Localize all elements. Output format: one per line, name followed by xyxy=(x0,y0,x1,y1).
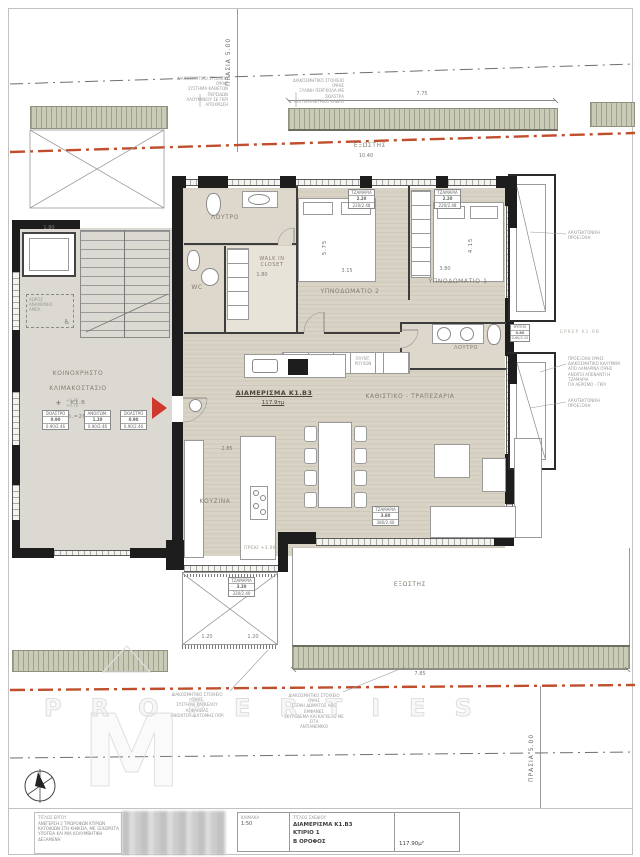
bath2-label: ΛΟΥΤΡΟ xyxy=(444,345,488,351)
pergola-railing-ticks xyxy=(182,645,278,649)
bedroom2-label: ΥΠΝΟΔΩΜΑΤΙΟ 2 xyxy=(308,288,392,296)
partition xyxy=(184,332,304,334)
note-top-1: ΔΙΑΚΟΣΜΗΤΙΚΟ ΣΤΟΙΧΕΙΟ ΟΨΗΣ ΣΥΣΤΗΜΑ ΚΑΘΕΤ… xyxy=(170,76,228,107)
partition xyxy=(400,368,506,370)
wall xyxy=(172,422,183,558)
north-arrow-needle xyxy=(35,772,46,789)
floor-drain xyxy=(189,399,202,412)
partition xyxy=(400,322,402,332)
stairwell-line2: ΚΛΙΜΑΚΟΣΤΑΣΙΟ xyxy=(28,385,128,393)
dim-pergola-b: 1.20 xyxy=(238,634,268,640)
balcony-bottom-floor xyxy=(292,548,630,645)
dim-bed2-w: 3.15 xyxy=(332,268,362,274)
burner xyxy=(260,495,266,501)
dim-bed1-w: 3.80 xyxy=(430,266,460,272)
balcony-top-length: 10.40 xyxy=(336,153,396,159)
window-tag-tzamaria-bed2: ΤΖΑΜΑΡΙΑ 2.20 220/2.48 xyxy=(348,189,375,209)
dining-chair xyxy=(304,426,317,442)
note-bottom-2: ΔΙΑΚΟΣΜΗΤΙΚΟ ΣΤΟΙΧΕΙΟ ΟΨΗΣ ΣΤΕΨΗ ΔΩΜΑΤΟΣ… xyxy=(282,693,346,729)
dining-chair xyxy=(354,492,367,508)
tag-spec: 220/2.48 xyxy=(435,202,460,208)
dim-kitchen: 2.85 xyxy=(212,446,242,452)
tag-spec: 320/2.40 xyxy=(229,590,254,596)
dining-chair xyxy=(304,492,317,508)
scale-cell: ΚΛΙΜΑΚΑ 1:50 xyxy=(238,813,290,851)
project-title-text: ΑΝΕΓΕΡΣΗ 2 ΤΡΙΩΡΟΦΩΝ ΚΤΙΡΙΩΝ ΚΑΤΟΙΚΙΩΝ Σ… xyxy=(38,821,121,842)
dining-table xyxy=(318,422,352,508)
balcony-band-bottom-right xyxy=(292,645,630,669)
bath1-label: ΛΟΥΤΡΟ xyxy=(200,214,250,222)
dim-bottom-width: 7.85 xyxy=(400,671,440,677)
amea-label: ΧΩΡΟΣ ΑΝΑΜΟΝΗΣ ΑΜΕΑ xyxy=(29,297,53,313)
stairwell-line1: ΚΟΙΝΟΧΡΗΣΤΟ xyxy=(28,370,128,378)
stamp-blurred xyxy=(122,811,226,855)
frame-bottom xyxy=(8,854,633,855)
balcony-band-bottom-left xyxy=(12,650,168,672)
leader-line xyxy=(343,667,405,692)
wall xyxy=(12,330,20,392)
sofa-seat xyxy=(430,506,516,538)
window-tag-anoigom: ΑΝΟΙΓΩΜ. 1.20 0.90/2.46 xyxy=(84,410,111,430)
wall xyxy=(280,176,296,188)
building-line-top xyxy=(10,133,635,152)
leader-line xyxy=(230,650,268,691)
wall xyxy=(14,548,54,558)
kitchen-label: ΚΟΥΖΙΝΑ xyxy=(194,498,236,506)
dining-chair xyxy=(354,470,367,486)
area-cell: 117.90μ² xyxy=(395,813,461,851)
armchair xyxy=(434,444,470,478)
window-tag-tzamaria-living: ΤΖΑΜΑΡΙΑ 3.80 380/2.40 xyxy=(372,506,399,526)
note-erker-1: ΑΡΧΙΤΕΚΤΟΝΙΚΗ ΠΡΟΕΞΟΧΗ xyxy=(568,230,618,240)
dim-bed2-h: 5.75 xyxy=(322,234,328,260)
balcony-band-top-left xyxy=(30,106,168,129)
wall xyxy=(12,220,20,272)
dining-chair xyxy=(304,470,317,486)
bath1-sink xyxy=(248,194,270,205)
north-arrow-circle xyxy=(25,771,55,801)
tag-name: ΣΚΙΑΣΤΡΟ xyxy=(121,411,146,416)
lift-dim: 1.80 xyxy=(36,225,62,231)
boundary-line-bottom xyxy=(10,752,635,758)
balcony-top-label: ΕΞΩΣΤΗΣ xyxy=(330,142,410,150)
drawing-title-1: ΔΙΑΜΕΡΙΣΜΑ Κ1.Β3 xyxy=(293,821,394,829)
tag-spec: 220/2.48 xyxy=(349,202,374,208)
apartment-area: 117.9τμ xyxy=(248,400,298,406)
note-bottom-1: ΔΙΑΚΟΣΜΗΤΙΚΟ ΣΤΟΙΧΕΙΟ ΟΨΗΣ ΣΥΣΤΗΜΑ ΚΑΓΚΕ… xyxy=(166,692,228,718)
wall xyxy=(166,540,184,570)
kitchen-appliance xyxy=(288,359,308,375)
entrance-arrow xyxy=(152,397,167,419)
kitchen-sink xyxy=(252,359,278,373)
bath2-wc xyxy=(487,324,501,345)
project-title-label: ΤΙΤΛΟΣ ΕΡΓΟΥ xyxy=(38,815,121,820)
window xyxy=(54,550,130,556)
tag-spec: 0.90/2.46 xyxy=(85,423,110,429)
drawing-title-label: ΤΙΤΛΟΣ ΣΧΕΔΙΟΥ xyxy=(293,815,394,820)
scale-label: ΚΛΙΜΑΚΑ xyxy=(241,815,289,820)
partition xyxy=(224,246,226,332)
window xyxy=(12,485,20,520)
wheelchair-icon: ♿ xyxy=(64,318,70,326)
level-marks: +6.45 +6.70 xyxy=(66,398,78,408)
living-label: ΚΑΘΙΣΤΙΚΟ - ΤΡΑΠΕΖΑΡΙΑ xyxy=(352,393,468,401)
bedroom1-label: ΥΠΝΟΔΩΜΑΤΙΟ 1 xyxy=(416,278,500,286)
sofa-back xyxy=(514,438,542,538)
burner xyxy=(260,509,266,515)
prasia-bottom-label: ΠΡΑΣΙΑ 5.00 xyxy=(528,722,535,782)
erker-label: ΕΡΚΕΡ Κ1.0Β xyxy=(552,330,608,335)
dim-bed1-h: 4.15 xyxy=(468,232,474,258)
note-erker-2: ΠΡΟΕΞΟΧΗ ΟΨΗΣ ΔΙΑΚΟΣΜΗΤΙΚΟ ΚΑΛΥΜΜΑ ΑΠΟ Λ… xyxy=(568,356,622,387)
wall xyxy=(198,176,228,188)
window xyxy=(184,565,280,572)
apartment-title: ΔΙΑΜΕΡΙΣΜΑ Κ1.Β3 xyxy=(228,389,320,397)
project-title-box: ΤΙΤΛΟΣ ΕΡΓΟΥ ΑΝΕΓΕΡΣΗ 2 ΤΡΙΩΡΟΦΩΝ ΚΤΙΡΙΩ… xyxy=(34,812,122,854)
wall xyxy=(12,445,20,485)
frame-top xyxy=(8,8,633,9)
window-tag-tzamaria-kitchen: ΤΖΑΜΑΡΙΑ 3.20 320/2.40 xyxy=(228,577,255,597)
bath2-basin-right xyxy=(460,327,474,341)
bed2-pillow-left xyxy=(303,202,333,215)
window xyxy=(316,538,494,546)
tag-name: ΨΥΓΕΙΟ xyxy=(511,325,529,330)
tag-name: ΤΖΑΜΑΡΙΑ xyxy=(349,190,374,195)
frame-left xyxy=(8,8,9,855)
partition xyxy=(408,186,410,300)
balcony-band-top-main xyxy=(288,108,558,131)
amea-waiting-area: ΧΩΡΟΣ ΑΝΑΜΟΝΗΣ ΑΜΕΑ ♿ xyxy=(26,294,74,328)
window-tag-skiastro-1: ΣΚΙΑΣΤΡΟ 0.90 0.90/2.46 xyxy=(42,410,69,430)
drawing-cell: ΤΙΤΛΟΣ ΣΧΕΔΙΟΥ ΔΙΑΜΕΡΙΣΜΑ Κ1.Β3 ΚΤΙΡΙΟ 1… xyxy=(290,813,395,851)
wc-toilet xyxy=(187,250,200,271)
drawing-title-3: Β ΟΡΟΦΟΣ xyxy=(293,838,394,846)
cooktop xyxy=(250,486,268,520)
closet-dim: 1.80 xyxy=(250,272,274,278)
window xyxy=(184,179,506,186)
plot-line-top xyxy=(237,9,238,152)
bed1-wardrobe xyxy=(411,190,431,278)
wall xyxy=(436,176,448,188)
lightwell-outline xyxy=(30,130,164,208)
window-tag-skiastro-2: ΣΚΙΑΣΤΡΟ 0.90 0.90/2.46 xyxy=(120,410,147,430)
wall xyxy=(508,176,517,228)
balcony-band-top-right xyxy=(590,102,635,127)
wall xyxy=(172,186,183,396)
dim-line-bottom xyxy=(293,669,628,670)
frame-right xyxy=(632,8,633,855)
scale-value: 1:50 xyxy=(241,821,289,827)
dining-chair xyxy=(304,448,317,464)
bath1-wc xyxy=(206,193,221,216)
note-top-2: ΔΙΑΚΟΣΜΗΤΙΚΟ ΣΤΟΙΧΕΙΟ ΟΨΗΣ ΞΥΛΙΝΗ ΠΕΡΓΚΟ… xyxy=(284,78,344,104)
lightwell-x xyxy=(30,130,164,208)
tag-spec: 380/2.40 xyxy=(373,519,398,525)
elevator-car xyxy=(29,238,69,271)
building-line-bottom xyxy=(10,685,635,690)
north-arrow-cross xyxy=(27,777,53,795)
wall xyxy=(278,532,288,572)
dining-chair xyxy=(354,426,367,442)
titleblock-divider xyxy=(8,808,633,809)
tag-name: ΤΖΑΜΑΡΙΑ xyxy=(435,190,460,195)
lightwell-x xyxy=(30,130,164,208)
burner xyxy=(253,503,259,509)
erker-bay-upper-window xyxy=(516,184,546,312)
tag-name: ΣΚΙΑΣΤΡΟ xyxy=(43,411,68,416)
tag-spec: 0.90/2.46 xyxy=(43,423,68,429)
burner xyxy=(253,490,259,496)
laundry-label: ΠΛΥΝΤ. ΡΟΥΧΩΝ xyxy=(351,356,375,366)
titleblock-table: ΚΛΙΜΑΚΑ 1:50 ΤΙΤΛΟΣ ΣΧΕΔΙΟΥ ΔΙΑΜΕΡΙΣΜΑ Κ… xyxy=(237,812,460,852)
window-tag-fridge-niche: ΨΥΓΕΙΟ 0.60 0.60/2.10 xyxy=(510,324,530,342)
tag-name: ΤΖΑΜΑΡΙΑ xyxy=(229,578,254,583)
dining-chair xyxy=(354,448,367,464)
walkin-label: WALK IN CLOSET xyxy=(246,256,298,269)
window-tag-tzamaria-bed1: ΤΖΑΜΑΡΙΑ 2.20 220/2.48 xyxy=(434,189,461,209)
window xyxy=(12,272,20,330)
area-value: 117.90μ² xyxy=(399,841,424,847)
wall xyxy=(360,176,372,188)
drawing-title-2: ΚΤΙΡΙΟ 1 xyxy=(293,829,394,837)
stair-flight xyxy=(80,230,170,338)
wc-label: WC xyxy=(186,284,208,292)
coffee-table xyxy=(482,458,506,492)
preki-label: ΠΡΕΚΙ +3.06 xyxy=(236,546,284,551)
floor-plan-sheet: ΠΡΑΣΙΑ 5.00 ΠΡΑΣΙΑ 5.00 ΕΞΩΣΤΗΣ 10.40 7.… xyxy=(0,0,640,857)
tag-spec: 0.90/2.46 xyxy=(121,423,146,429)
bed1-pillow-right xyxy=(470,206,498,219)
wall xyxy=(172,176,186,188)
plot-line-bottom xyxy=(540,686,541,808)
note-erker-3: ΑΡΧΙΤΕΚΤΟΝΙΚΗ ΠΡΟΕΞΟΧΗ xyxy=(568,398,618,408)
balcony-bottom-label: ΕΞΩΣΤΗΣ xyxy=(378,581,442,589)
tag-spec: 0.60/2.10 xyxy=(511,335,529,341)
partition xyxy=(324,332,400,334)
partition xyxy=(184,243,278,245)
dim-pergola-a: 1.20 xyxy=(192,634,222,640)
dim-top-width: 7.75 xyxy=(402,91,442,97)
wall xyxy=(508,354,517,384)
stair-divider xyxy=(124,230,125,338)
bath2-basin-left xyxy=(437,327,451,341)
window xyxy=(12,392,20,445)
tag-name: ΤΖΑΜΑΡΙΑ xyxy=(373,507,398,512)
level-symbol: ✛ xyxy=(56,400,61,407)
laundry-box: ΠΛΥΝΤ. ΡΟΥΧΩΝ xyxy=(350,352,376,374)
tag-name: ΑΝΟΙΓΩΜ. xyxy=(85,411,110,416)
